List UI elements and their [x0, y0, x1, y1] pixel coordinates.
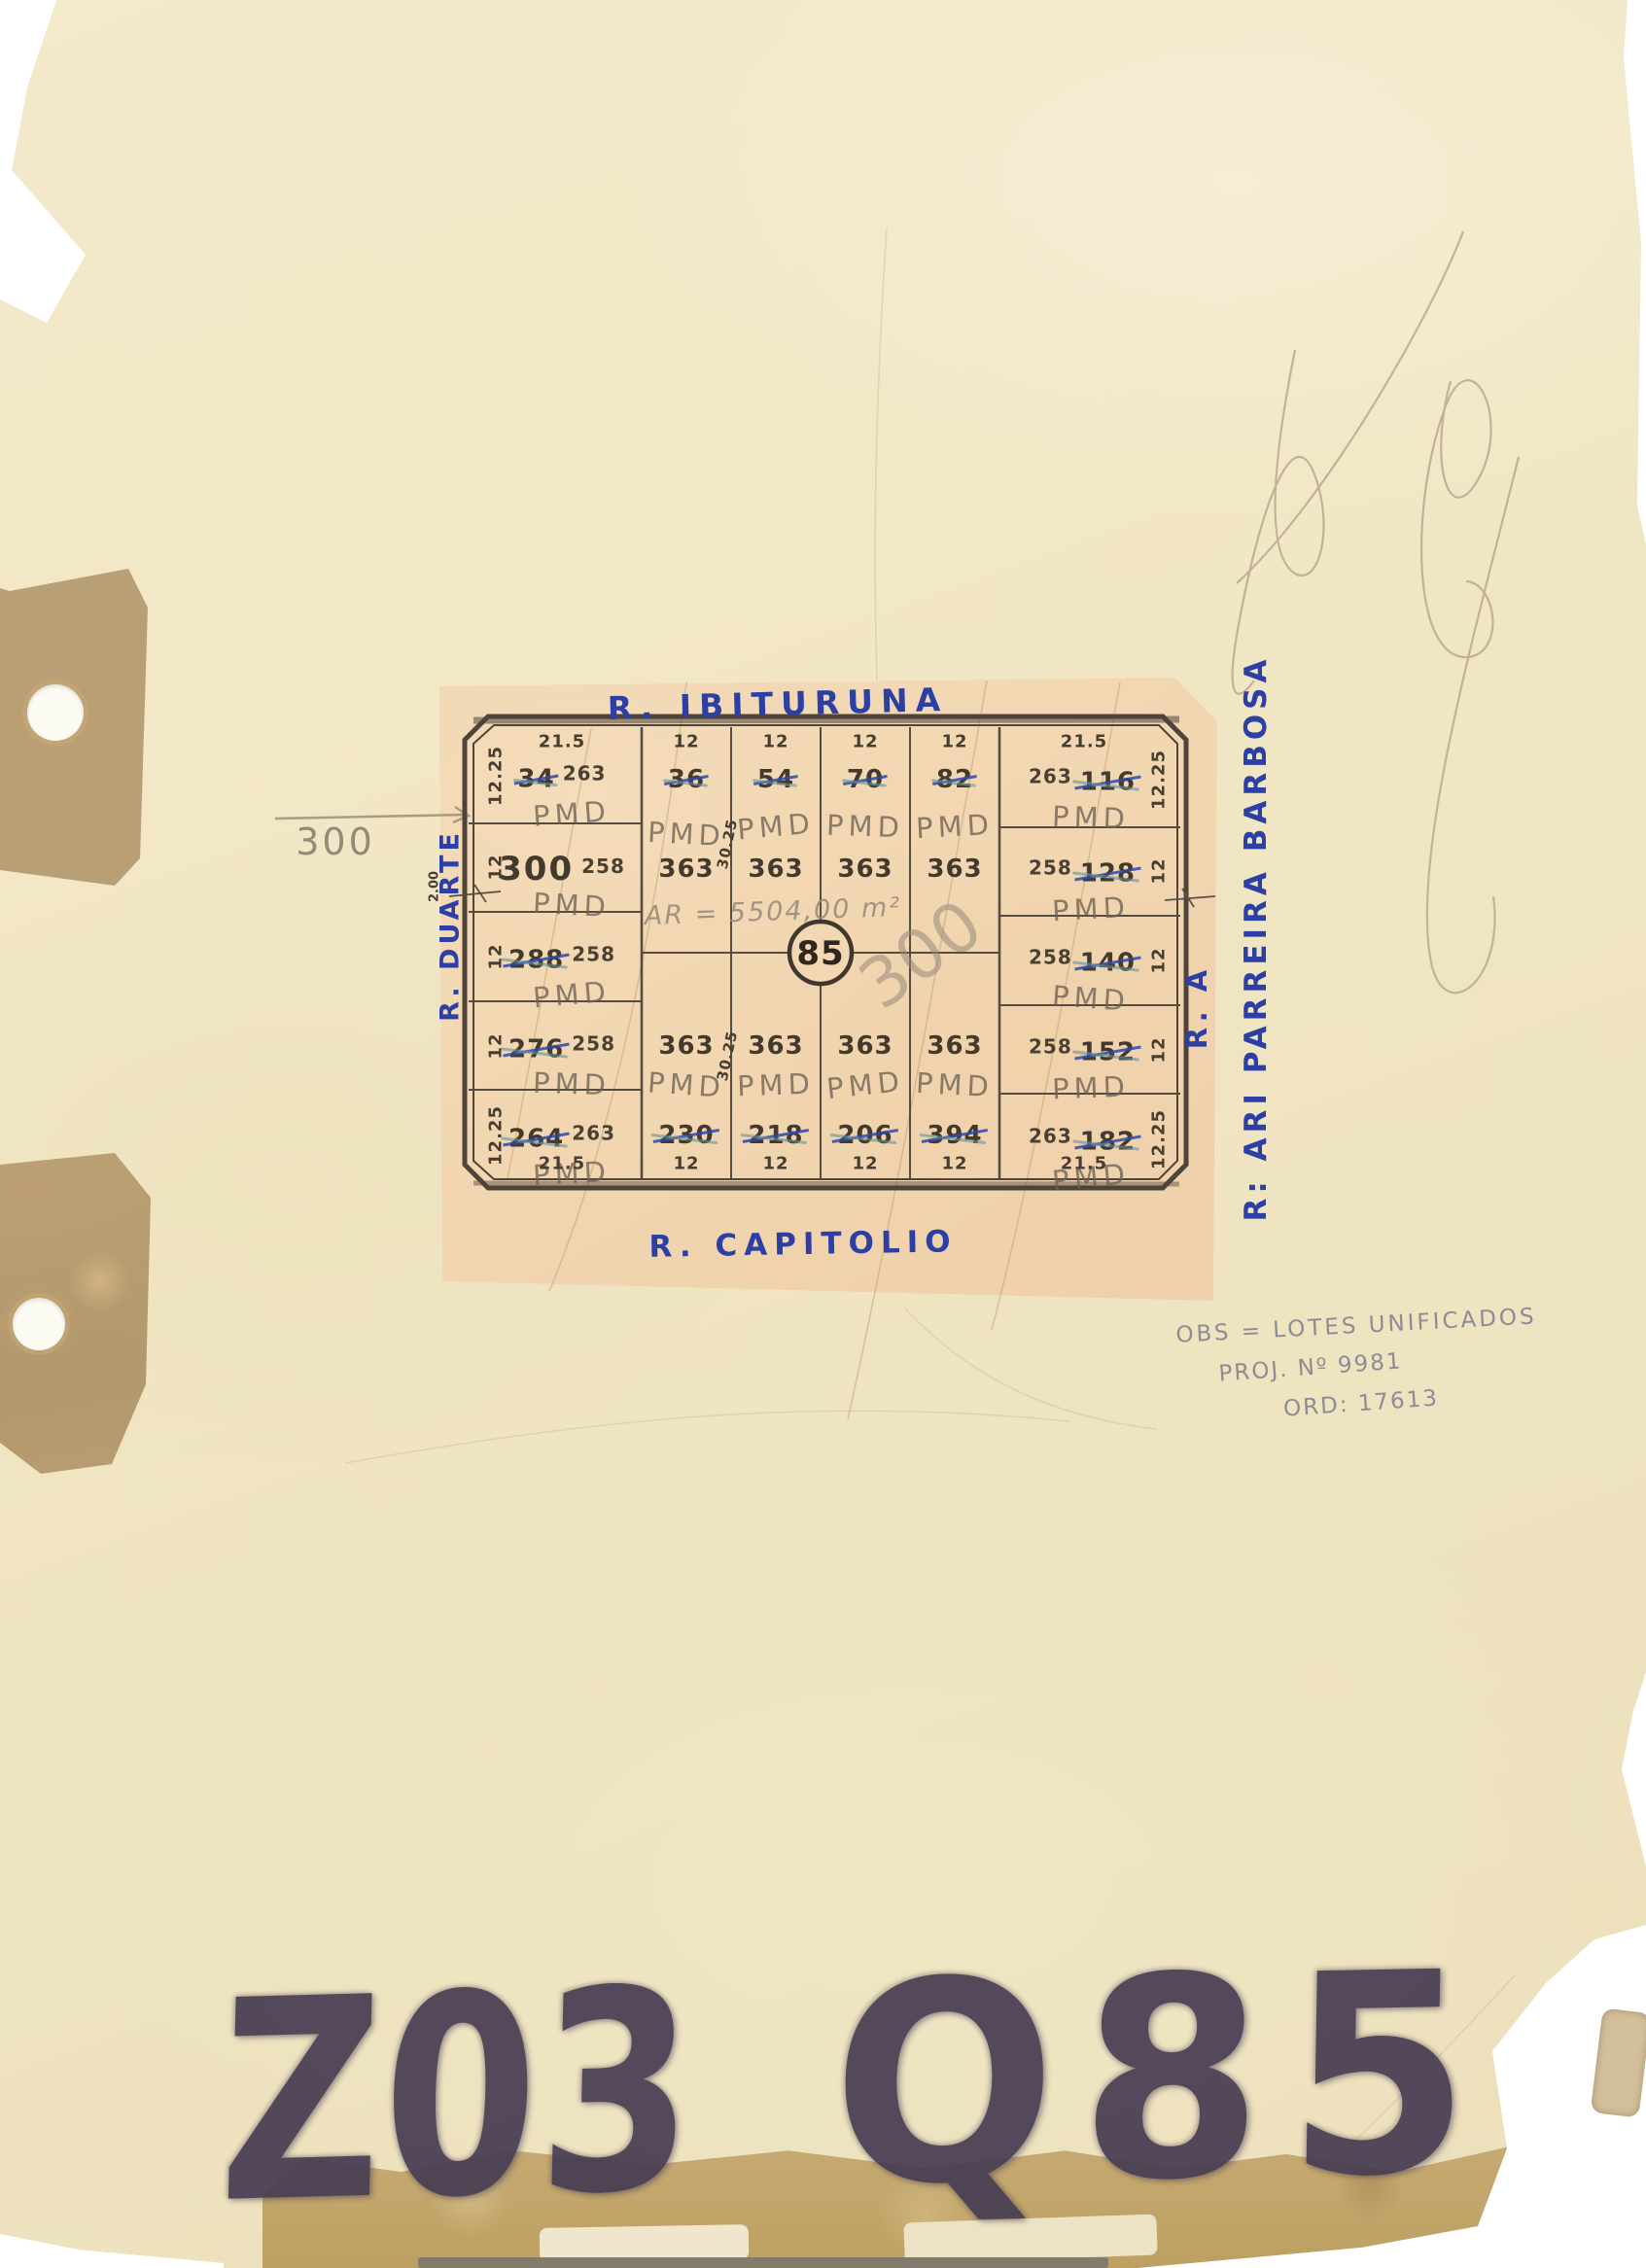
lot-number: 128 [1080, 859, 1136, 889]
pmd-stamp: PMD [532, 975, 613, 1015]
border-note-200: 2.00 [428, 871, 442, 902]
lot-label: 34263 [514, 762, 611, 794]
lot-area: 363 [748, 1031, 803, 1061]
lot-label: 36 [664, 765, 709, 794]
lot-number: 276 [508, 1035, 564, 1064]
pmd-stamp: PMD [532, 887, 612, 924]
pmd-stamp: PMD [736, 807, 817, 847]
lot-label: 300258 [495, 850, 629, 889]
edge-label-left: 12.25 [486, 1105, 507, 1166]
edge-label-bottom: 12 [673, 1154, 699, 1174]
lot-number: 206 [837, 1121, 893, 1150]
lot-area: 363 [748, 855, 803, 884]
street-name-left: R. DUARTE [436, 829, 466, 1022]
lot-number: 140 [1080, 949, 1136, 978]
pmd-stamp: PMD [647, 816, 726, 853]
lot-number: 54 [757, 765, 794, 794]
lot-area: 263 [1029, 765, 1072, 788]
edge-label-bottom: 21.5 [539, 1154, 585, 1174]
lot-number: 34 [518, 765, 555, 794]
pmd-stamp: PMD [826, 809, 905, 845]
bottom-stamp-zone: Z03 [218, 1978, 698, 2217]
street-name-right: R. A [1180, 965, 1213, 1049]
edge-label-top: 21.5 [1061, 732, 1107, 752]
lot-label: 363 [654, 855, 718, 884]
pmd-stamp: PMD [532, 794, 612, 832]
lot-label: 363 [923, 1031, 986, 1061]
lot-label: 70 [843, 765, 888, 794]
lot-label: 394 [923, 1121, 986, 1150]
lot-area: 258 [581, 855, 625, 878]
lot-area: 263 [563, 762, 607, 785]
lot-area: 258 [572, 943, 615, 966]
pmd-stamp: PMD [1051, 979, 1131, 1017]
lot-area: 258 [572, 1032, 615, 1056]
pmd-stamp: PMD [1051, 890, 1131, 927]
lot-number: 394 [927, 1121, 982, 1150]
lot-label: 258128 [1025, 856, 1139, 889]
lot-label: 363 [744, 1031, 807, 1061]
lot-label: 82 [932, 765, 977, 794]
block-number: 85 [796, 934, 844, 973]
pmd-stamp: PMD [1052, 800, 1131, 836]
lot-number: 300 [499, 850, 574, 889]
street-name-bottom: R. CAPITOLIO [648, 1224, 958, 1265]
lot-number: 70 [847, 765, 884, 794]
lot-number: 230 [658, 1121, 714, 1150]
pmd-stamp: PMD [825, 1064, 906, 1105]
punch-hole-bottom [13, 1298, 65, 1350]
edge-label-left: 12 [486, 1032, 507, 1059]
lot-area: 263 [572, 1122, 615, 1145]
scanned-page: 34263PMD300258PMD288258PMD276258PMD26426… [0, 0, 1646, 2268]
pmd-stamp: PMD [915, 1066, 995, 1103]
lot-number: 182 [1080, 1128, 1136, 1157]
edge-label-left: 12.25 [486, 746, 507, 806]
edge-label-left: 12 [486, 943, 507, 969]
edge-label-right: 12 [1149, 1036, 1170, 1063]
lot-label: 54 [753, 765, 798, 794]
lot-area: 263 [1029, 1125, 1072, 1148]
pmd-stamp: PMD [737, 1067, 816, 1103]
lot-label: 263116 [1025, 765, 1139, 797]
lot-label: 258140 [1025, 946, 1139, 978]
lot-number: 288 [508, 946, 564, 975]
lot-label: 363 [833, 855, 896, 884]
lot-label: 263182 [1025, 1125, 1139, 1157]
edge-label-top: 21.5 [539, 732, 585, 752]
lot-area: 258 [1029, 946, 1072, 969]
lot-number: 36 [668, 765, 705, 794]
edge-label-top: 12 [852, 732, 878, 752]
edge-label-top: 12 [941, 732, 967, 752]
edge-label-bottom: 12 [941, 1154, 967, 1174]
lot-label: 218 [744, 1121, 807, 1150]
edge-label-top: 12 [673, 732, 699, 752]
lot-label: 230 [654, 1121, 718, 1150]
edge-label-right: 12.25 [1149, 750, 1170, 810]
edge-label-bottom: 21.5 [1061, 1154, 1107, 1174]
lot-number: 152 [1080, 1038, 1136, 1067]
edge-label-right: 12 [1149, 857, 1170, 884]
lot-area: 363 [927, 855, 982, 884]
lot-area: 363 [837, 1031, 893, 1061]
lot-label: 363 [744, 855, 807, 884]
lot-number: 264 [508, 1125, 564, 1154]
edge-label-top: 12 [762, 732, 788, 752]
handwritten-measure-300: 300 [296, 820, 375, 863]
punch-hole-top [27, 684, 84, 741]
lot-label: 288258 [505, 943, 619, 975]
lot-label: 258152 [1025, 1035, 1139, 1067]
bottom-stamp-quadra: Q85 [830, 1961, 1496, 2200]
edge-label-left: 12 [486, 854, 507, 880]
edge-label-right: 12.25 [1149, 1109, 1170, 1169]
lot-label: 363 [654, 1031, 718, 1061]
lot-area: 363 [837, 855, 893, 884]
lot-number: 116 [1080, 768, 1136, 797]
lot-label: 206 [833, 1121, 896, 1150]
lot-area: 363 [658, 1031, 714, 1061]
pmd-stamp: PMD [915, 808, 995, 845]
edge-label-bottom: 12 [852, 1154, 878, 1174]
pmd-stamp: PMD [533, 1066, 612, 1102]
lot-area: 258 [1029, 1035, 1072, 1059]
edge-label-bottom: 12 [762, 1154, 788, 1174]
edge-label-right: 12 [1149, 947, 1170, 973]
lot-area: 258 [1029, 856, 1072, 880]
street-name-right-outer: R: ARI PARREIRA BARBOSA [1239, 654, 1274, 1221]
lot-label: 264263 [505, 1122, 619, 1154]
lot-area: 363 [927, 1031, 982, 1061]
lot-number: 82 [936, 765, 973, 794]
lot-label: 276258 [505, 1032, 619, 1064]
lot-number: 218 [748, 1121, 803, 1150]
pmd-stamp: PMD [1052, 1070, 1131, 1106]
lot-label: 363 [833, 1031, 896, 1061]
lot-area: 363 [658, 855, 714, 884]
bottom-edge-shadow [418, 2257, 1108, 2268]
lot-label: 363 [923, 855, 986, 884]
